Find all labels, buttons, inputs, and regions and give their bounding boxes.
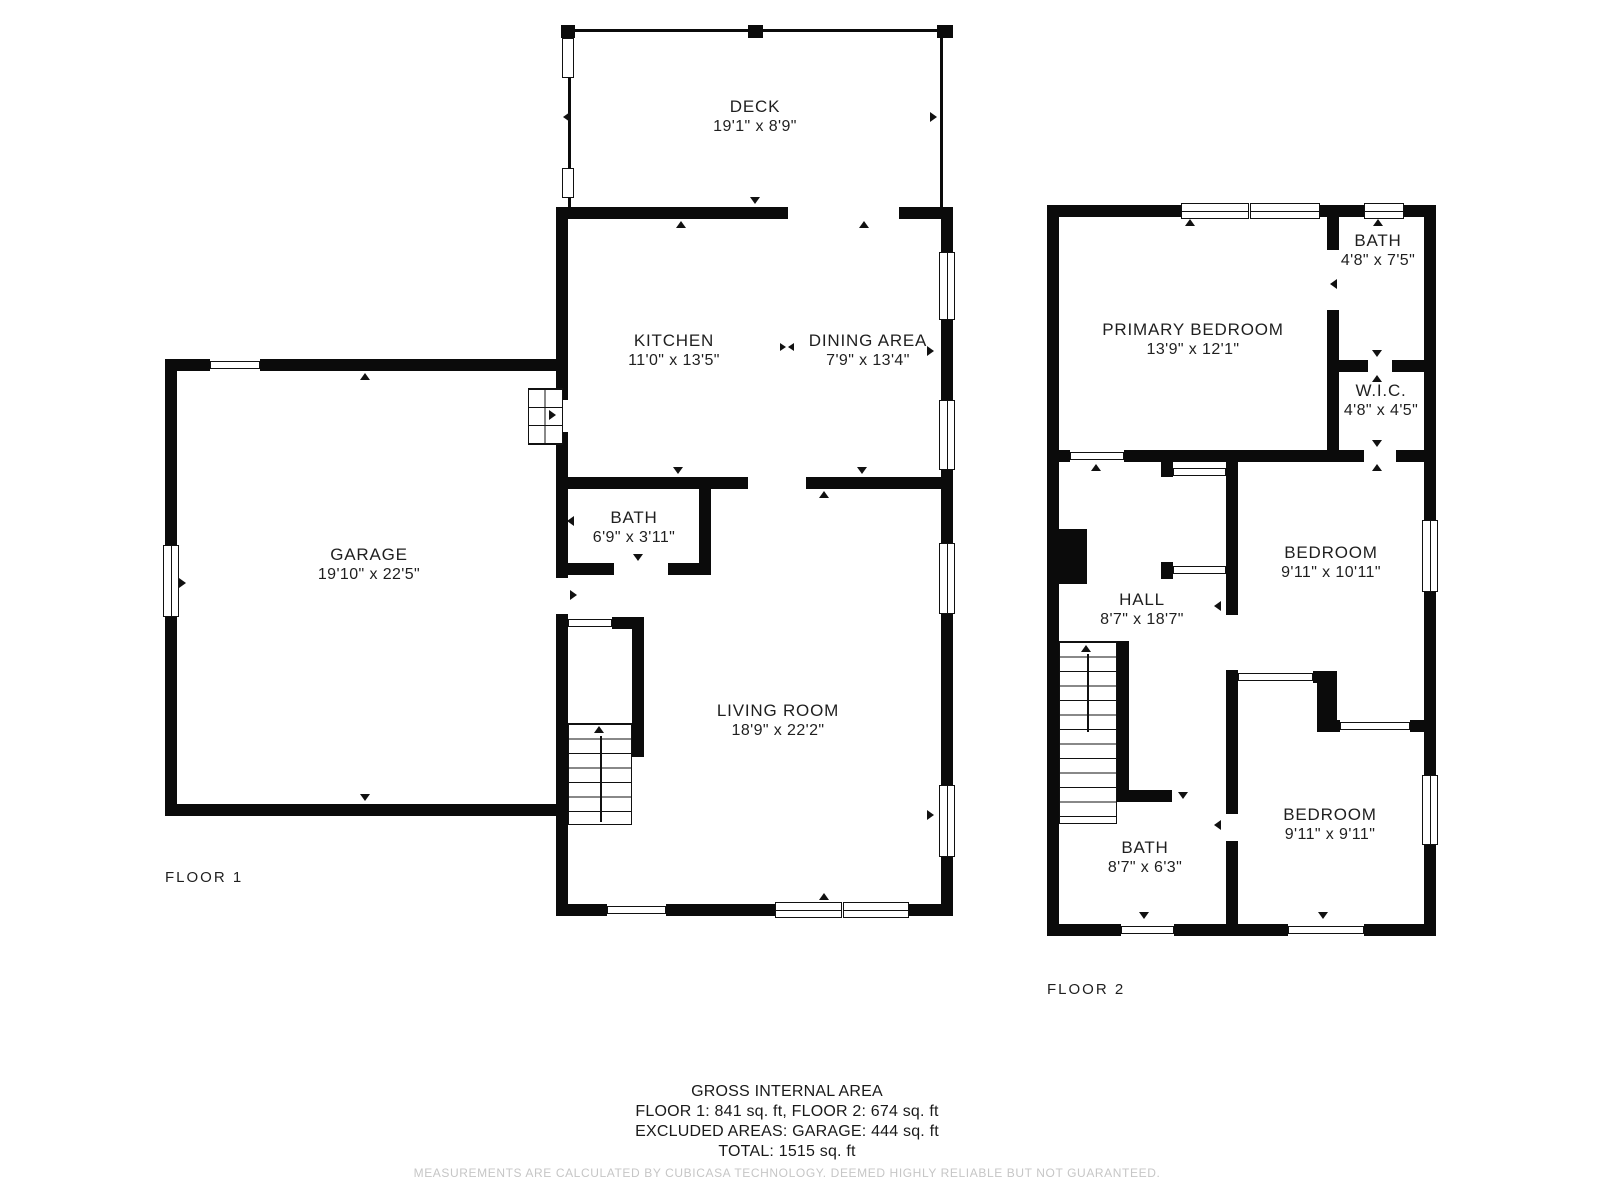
closet-door-panel <box>1173 566 1226 574</box>
staircase <box>568 723 632 825</box>
room-dims: 13'9" x 12'1" <box>1102 340 1283 360</box>
wall-segment <box>556 477 748 489</box>
floor1-label: FLOOR 1 <box>165 869 243 886</box>
wall-segment <box>556 614 568 916</box>
floorplan-canvas: DECK 19'1" x 8'9" KITCHEN 11'0" x 13'5" … <box>0 0 1600 1200</box>
wall-segment <box>699 477 711 575</box>
room-dims: 9'11" x 10'11" <box>1281 563 1381 583</box>
door-arrow-icon <box>633 554 643 561</box>
window <box>939 252 955 320</box>
wall-segment <box>1059 450 1070 462</box>
room-dims: 19'10" x 22'5" <box>318 565 420 585</box>
door-panel <box>607 906 666 914</box>
door-arrow-icon <box>857 467 867 474</box>
total-area-line: TOTAL: 1515 sq. ft <box>287 1143 1287 1161</box>
marker-icon <box>360 373 370 380</box>
window-panel <box>210 361 260 369</box>
room-name: BEDROOM <box>1281 543 1381 563</box>
door-arrow-icon <box>1178 792 1188 799</box>
marker-icon <box>563 112 570 122</box>
garage-steps <box>528 388 563 445</box>
stair-direction-line <box>600 736 602 822</box>
wall-segment <box>556 207 568 400</box>
wall-segment <box>941 320 953 400</box>
door-hinge-icon <box>788 343 794 351</box>
window <box>1181 203 1249 219</box>
door-arrow-icon <box>1091 464 1101 471</box>
window <box>843 902 909 918</box>
wall-segment <box>1226 462 1238 615</box>
wall-segment <box>1117 790 1172 802</box>
stair-up-arrow-icon <box>1081 645 1091 652</box>
wall-segment <box>556 904 607 916</box>
excluded-areas-line: EXCLUDED AREAS: GARAGE: 444 sq. ft <box>287 1123 1287 1141</box>
door-arrow-icon <box>1372 464 1382 471</box>
wall-segment <box>556 432 568 578</box>
room-label-kitchen: KITCHEN 11'0" x 13'5" <box>628 331 720 371</box>
window <box>939 543 955 614</box>
wall-segment <box>632 629 644 757</box>
wall-segment <box>568 563 614 575</box>
marker-icon <box>927 810 934 820</box>
door-arrow-icon <box>859 221 869 228</box>
wall-segment <box>806 477 941 489</box>
marker-icon <box>927 346 934 356</box>
room-name: BATH <box>1341 231 1415 251</box>
room-dims: 6'9" x 3'11" <box>593 528 675 548</box>
wall-segment <box>165 359 177 545</box>
wall-segment <box>1161 562 1173 579</box>
marker-icon <box>1139 912 1149 919</box>
door-panel <box>568 619 612 627</box>
wall-segment <box>1410 720 1424 732</box>
window <box>939 400 955 470</box>
wall-segment <box>1424 592 1436 775</box>
room-dims: 8'7" x 18'7" <box>1100 610 1184 630</box>
wall-segment <box>1317 720 1340 732</box>
door-arrow-icon <box>360 794 370 801</box>
wall-segment <box>612 617 644 629</box>
marker-icon <box>1318 912 1328 919</box>
wall-segment <box>1392 360 1424 372</box>
room-label-garage: GARAGE 19'10" x 22'5" <box>318 545 420 585</box>
room-dims: 8'7" x 6'3" <box>1108 858 1182 878</box>
gross-internal-area-title: GROSS INTERNAL AREA <box>287 1083 1287 1101</box>
door-arrow-icon <box>549 410 556 420</box>
door-arrow-icon <box>676 221 686 228</box>
room-name: KITCHEN <box>628 331 720 351</box>
wall-segment <box>941 614 953 785</box>
wall-segment <box>1117 641 1129 801</box>
deck-post <box>748 25 763 38</box>
door-arrow-icon <box>570 590 577 600</box>
door-arrow-icon <box>1372 350 1382 357</box>
room-label-living-room: LIVING ROOM 18'9" x 22'2" <box>717 701 839 741</box>
room-name: W.I.C. <box>1344 381 1418 401</box>
window <box>163 545 179 617</box>
room-dims: 9'11" x 9'11" <box>1283 825 1376 845</box>
door-arrow-icon <box>750 197 760 204</box>
wall-segment <box>941 207 953 252</box>
room-label-bath-bottom: BATH 8'7" x 6'3" <box>1108 838 1182 878</box>
room-label-dining-area: DINING AREA 7'9" x 13'4" <box>809 331 927 371</box>
wall-segment <box>1047 924 1121 936</box>
stair-up-arrow-icon <box>594 726 604 733</box>
wall-segment <box>668 563 711 575</box>
room-name: GARAGE <box>318 545 420 565</box>
room-dims: 7'9" x 13'4" <box>809 351 927 371</box>
room-name: BATH <box>1108 838 1182 858</box>
floor-areas-line: FLOOR 1: 841 sq. ft, FLOOR 2: 674 sq. ft <box>287 1103 1287 1121</box>
deck-rail-right <box>940 29 943 207</box>
door-panel <box>1070 452 1124 460</box>
room-dims: 4'8" x 4'5" <box>1344 401 1418 421</box>
door-arrow-icon <box>1214 601 1221 611</box>
door-arrow-icon <box>1330 279 1337 289</box>
door-arrow-icon <box>673 467 683 474</box>
room-label-deck: DECK 19'1" x 8'9" <box>713 97 797 137</box>
wall-segment <box>1327 217 1339 250</box>
room-dims: 11'0" x 13'5" <box>628 351 720 371</box>
wall-segment <box>666 904 775 916</box>
door-arrow-icon <box>1372 440 1382 447</box>
floor2-label: FLOOR 2 <box>1047 981 1125 998</box>
room-name: DINING AREA <box>809 331 927 351</box>
stair-direction-line <box>1087 654 1089 732</box>
wall-segment <box>1320 205 1364 217</box>
window <box>939 785 955 857</box>
room-dims: 4'8" x 7'5" <box>1341 251 1415 271</box>
room-label-bath-floor1: BATH 6'9" x 3'11" <box>593 508 675 548</box>
closet-door-panel <box>1238 673 1313 681</box>
room-label-bedroom-bottom: BEDROOM 9'11" x 9'11" <box>1283 805 1376 845</box>
wall-segment <box>165 804 568 816</box>
room-label-wic: W.I.C. 4'8" x 4'5" <box>1344 381 1418 421</box>
wall-segment <box>1424 845 1436 936</box>
room-name: DECK <box>713 97 797 117</box>
wall-segment <box>1226 841 1238 936</box>
wall-segment <box>1339 360 1368 372</box>
window <box>1422 775 1438 845</box>
room-name: LIVING ROOM <box>717 701 839 721</box>
wall-segment <box>1364 924 1436 936</box>
closet-door-panel <box>1340 722 1410 730</box>
wall-segment <box>556 207 788 219</box>
wall-segment <box>1226 670 1238 814</box>
wall-segment <box>165 617 177 816</box>
window-panel <box>1121 926 1174 934</box>
window <box>1364 203 1404 219</box>
marker-icon <box>567 516 574 526</box>
staircase <box>1059 641 1117 824</box>
marker-icon <box>1373 219 1383 226</box>
marker-icon <box>930 112 937 122</box>
wall-segment <box>1124 450 1364 462</box>
door-arrow-icon <box>819 491 829 498</box>
wall-segment <box>941 470 953 543</box>
room-name: BATH <box>593 508 675 528</box>
room-dims: 19'1" x 8'9" <box>713 117 797 137</box>
closet-door-panel <box>1173 468 1226 476</box>
marker-icon <box>1185 219 1195 226</box>
room-dims: 18'9" x 22'2" <box>717 721 839 741</box>
room-label-bedroom-mid: BEDROOM 9'11" x 10'11" <box>1281 543 1381 583</box>
disclaimer-text: MEASUREMENTS ARE CALCULATED BY CUBICASA … <box>287 1166 1287 1180</box>
wall-segment <box>1327 310 1339 450</box>
room-label-primary-bedroom: PRIMARY BEDROOM 13'9" x 12'1" <box>1102 320 1283 360</box>
room-name: BEDROOM <box>1283 805 1376 825</box>
wall-segment <box>1424 205 1436 520</box>
room-label-bath-top: BATH 4'8" x 7'5" <box>1341 231 1415 271</box>
marker-icon <box>179 578 186 588</box>
room-name: PRIMARY BEDROOM <box>1102 320 1283 340</box>
wall-segment <box>260 359 556 371</box>
window-panel <box>1288 926 1364 934</box>
room-label-hall: HALL 8'7" x 18'7" <box>1100 590 1184 630</box>
wall-segment <box>1161 462 1173 477</box>
deck-post <box>937 25 953 38</box>
deck-post <box>561 25 575 38</box>
door-hinge-icon <box>780 343 786 351</box>
window <box>1422 520 1438 592</box>
room-name: HALL <box>1100 590 1184 610</box>
deck-rail-panel <box>562 168 574 198</box>
chimney <box>1047 529 1087 584</box>
window <box>775 902 842 918</box>
window <box>1250 203 1320 219</box>
deck-rail-panel <box>562 38 574 78</box>
door-arrow-icon <box>1214 820 1221 830</box>
wall-segment <box>1396 450 1424 462</box>
wall-segment <box>909 904 953 916</box>
wall-segment <box>1047 205 1181 217</box>
marker-icon <box>819 893 829 900</box>
